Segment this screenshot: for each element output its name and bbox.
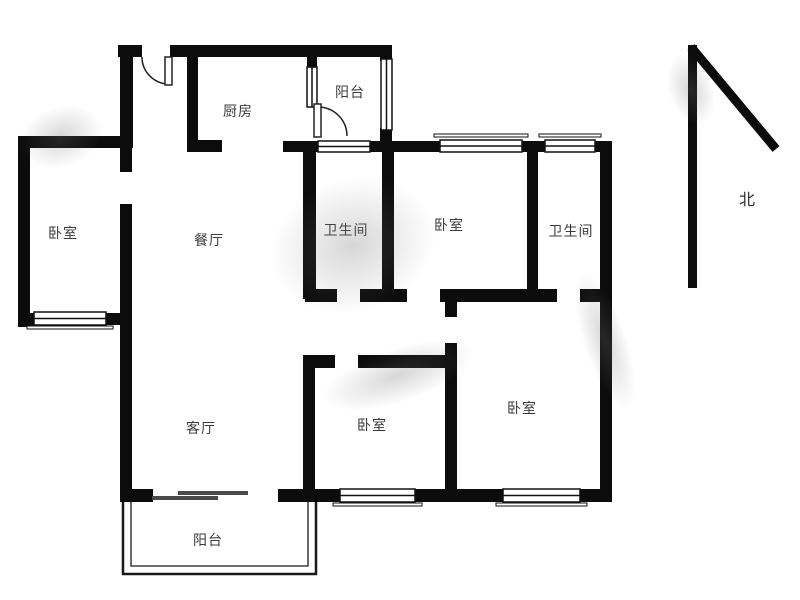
floor-plan-canvas	[0, 0, 800, 600]
balcony-outline	[123, 502, 316, 574]
floor-plan: 厨房 阳台 卧室 餐厅 卫生间 卧室 卫生间 客厅 卧室 卧室 阳台 北	[0, 0, 800, 600]
entry-door-arc	[142, 57, 172, 85]
north-arrow	[688, 45, 776, 288]
sliding-door	[152, 491, 248, 500]
balcony-door-arc	[314, 104, 347, 137]
